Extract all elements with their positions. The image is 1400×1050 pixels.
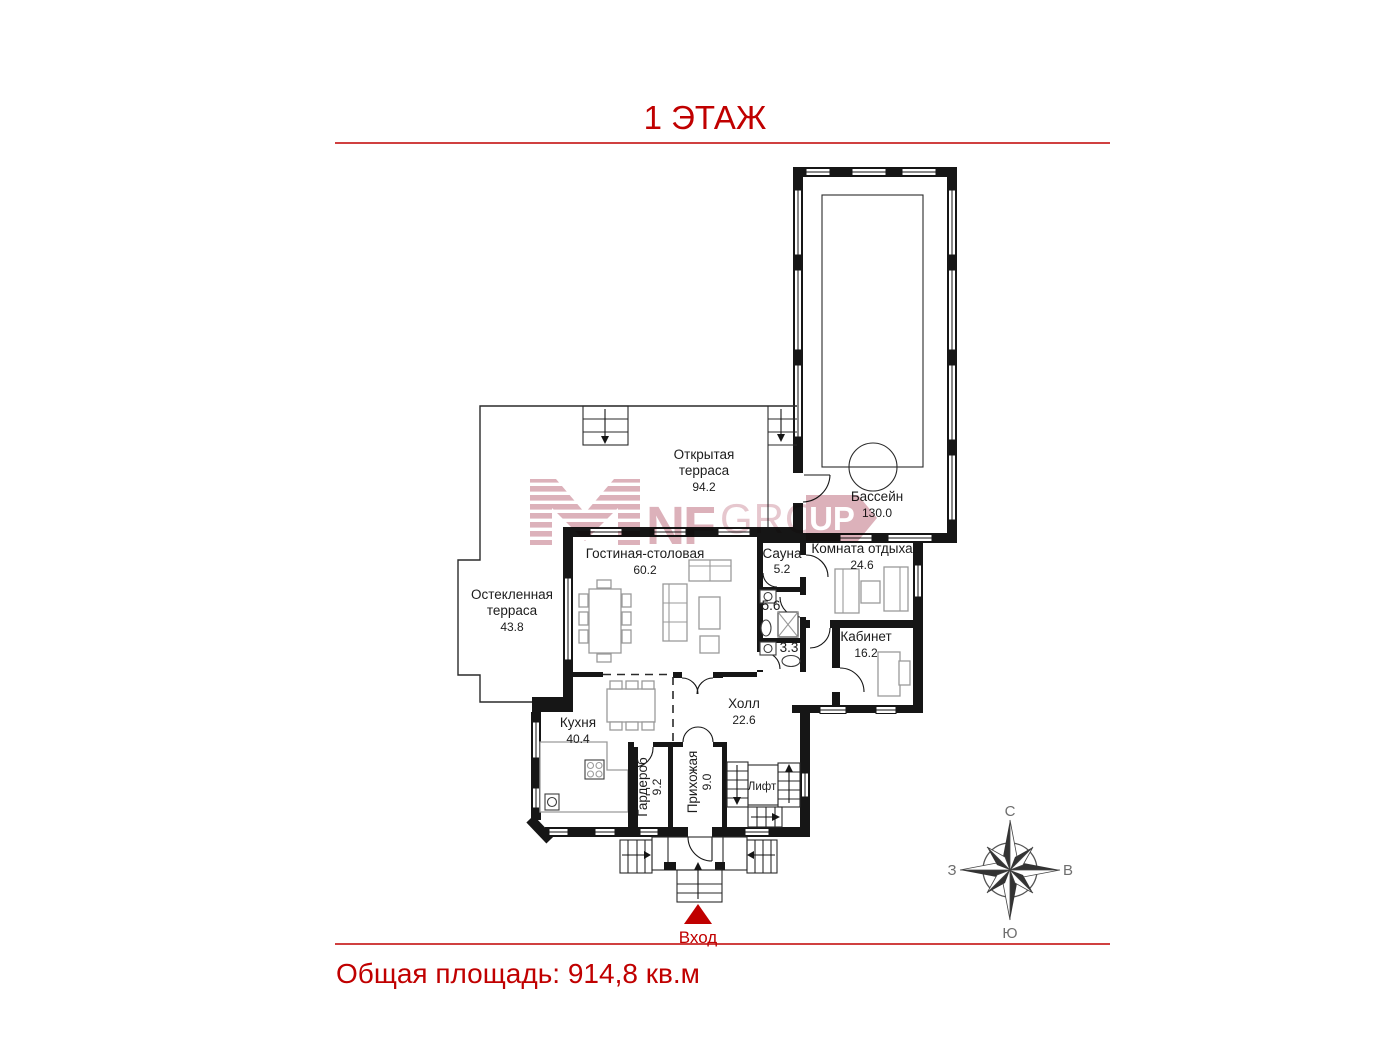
area-label-hall: 22.6 (732, 713, 756, 727)
room-label-glazed-terrace-1: Остекленная (471, 587, 553, 602)
stairs-bottom-flight (748, 807, 782, 827)
hall-walls (727, 713, 810, 837)
area-label-living: 60.2 (633, 563, 657, 577)
area-label-open-terrace: 94.2 (692, 480, 716, 494)
compass-west-label: З (947, 862, 956, 879)
watermark-nf-text: NF (646, 496, 715, 556)
pool-basin (822, 195, 923, 491)
area-label-glazed-terrace: 43.8 (500, 620, 524, 634)
area-label-entry: 9.0 (700, 773, 714, 790)
page-title: 1 ЭТАЖ (644, 99, 767, 136)
compass-south-label: Ю (1002, 925, 1017, 942)
room-label-sauna: Сауна (763, 546, 802, 561)
pool-building-walls (757, 167, 957, 543)
area-label-shower: 5.6 (762, 598, 781, 613)
floorplan-page: 1 ЭТАЖ Бассейн 130.0 (0, 0, 1400, 1050)
room-label-glazed-terrace-2: терраса (487, 603, 538, 618)
room-label-office: Кабинет (840, 629, 891, 644)
room-label-hall: Холл (728, 696, 760, 711)
stairs-left-flight (727, 762, 748, 807)
room-label-kitchen: Кухня (560, 715, 596, 730)
room-label-open-terrace-2: терраса (679, 463, 730, 478)
compass-east-label: В (1063, 862, 1073, 879)
floorplan-canvas: 1 ЭТАЖ Бассейн 130.0 (0, 0, 1400, 1050)
area-label-wc: 3.3 (780, 640, 799, 655)
room-label-entry: Прихожая (685, 751, 700, 814)
area-label-wardrobe: 9.2 (650, 778, 664, 795)
porch (620, 837, 777, 902)
area-label-kitchen: 40.4 (566, 732, 590, 746)
area-label-office: 16.2 (854, 646, 878, 660)
watermark-up-text: UP (809, 500, 855, 537)
room-label-open-terrace-1: Открытая (674, 447, 735, 462)
office-furniture (878, 652, 910, 696)
area-label-lounge: 24.6 (850, 558, 874, 572)
entrance-arrow-icon (684, 904, 712, 924)
lounge-furniture (835, 567, 908, 613)
watermark-gro-text: GRO (720, 495, 819, 542)
total-area-label: Общая площадь: 914,8 кв.м (336, 958, 700, 989)
stairs-right-flight (778, 763, 800, 807)
compass-rose-icon: С Ю З В (947, 803, 1073, 942)
room-label-lounge: Комната отдыха (811, 541, 913, 556)
compass-north-label: С (1005, 803, 1016, 820)
room-label-wardrobe: Гардероб (635, 757, 650, 817)
area-label-sauna: 5.2 (774, 562, 791, 576)
watermark-m-icon (530, 479, 640, 545)
room-label-elevator: Лифт (748, 781, 777, 793)
